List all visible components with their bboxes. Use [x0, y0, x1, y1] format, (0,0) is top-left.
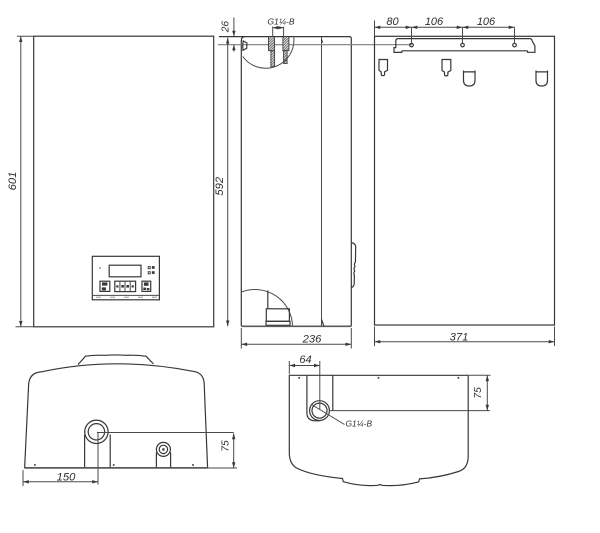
svg-text:150: 150: [57, 471, 76, 483]
svg-text:26: 26: [221, 21, 232, 34]
svg-text:106: 106: [477, 16, 496, 28]
svg-text:G1¼-B: G1¼-B: [267, 16, 294, 26]
svg-text:75: 75: [473, 387, 484, 399]
svg-text:75: 75: [220, 440, 231, 452]
svg-text:592: 592: [214, 176, 226, 195]
svg-text:371: 371: [450, 332, 469, 344]
svg-text:G1¼-B: G1¼-B: [346, 419, 373, 429]
svg-text:80: 80: [386, 16, 399, 28]
svg-text:106: 106: [425, 16, 444, 28]
svg-text:601: 601: [7, 172, 19, 191]
svg-text:236: 236: [302, 334, 322, 346]
svg-text:64: 64: [299, 354, 311, 366]
